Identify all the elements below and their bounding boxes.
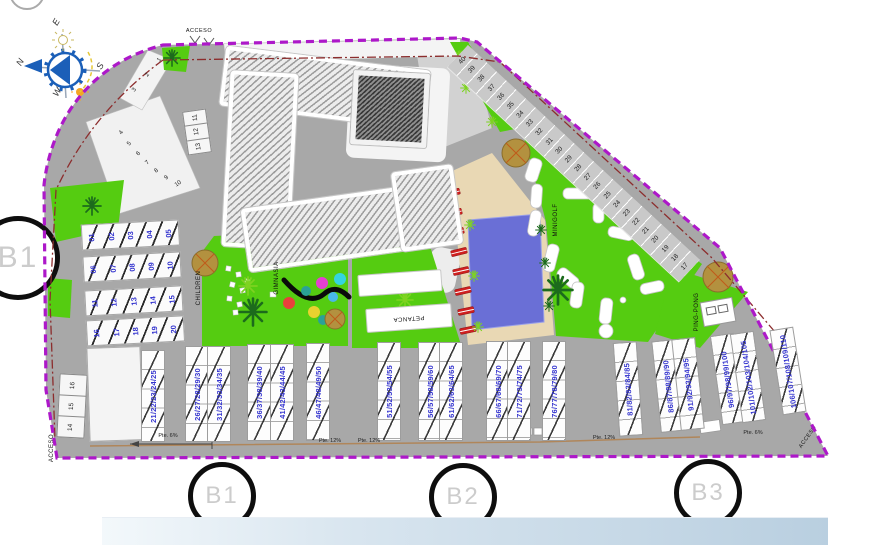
unit-10: 10	[166, 261, 175, 270]
unit-row-label: 36/37/38/39/40	[255, 366, 264, 419]
unit-17: 17	[112, 327, 121, 336]
unit-02: 02	[106, 232, 115, 241]
unit-row-label: 51/52/53/54/55	[385, 365, 394, 418]
unit-19: 19	[150, 325, 159, 334]
parking-box-14-16: 161514	[56, 373, 87, 438]
parking-space-number: 14	[67, 423, 74, 431]
parking-space-number: 15	[68, 402, 75, 410]
apartment-building-east-block	[391, 164, 464, 252]
unit-row-block-5: 41/42/43/44/45	[270, 344, 294, 441]
unit-row-label: 46/47/48/49/50	[314, 366, 323, 419]
unit-03: 03	[126, 231, 135, 240]
slope-label: Pte. 12%	[319, 438, 341, 444]
unit-row-block-6: 46/47/48/49/50	[306, 343, 330, 441]
acceso-top-label: ACCESO	[186, 28, 212, 34]
unit-row-left-4: 1617181920	[86, 315, 185, 346]
unit-row-label: 66/67/68/69/70	[494, 365, 503, 418]
unit-01: 01	[87, 233, 96, 242]
unit-row-block-11: 71/72/73/74/75	[507, 341, 531, 441]
unit-row-label: 31/32/33/34/35	[215, 368, 224, 421]
unit-row-left-1: 0102030405	[81, 219, 180, 250]
unit-row-label: 26/27/28/29/30	[193, 368, 202, 421]
unit-15: 15	[167, 295, 176, 304]
unit-20: 20	[169, 324, 178, 333]
unit-row-block-3: 31/32/33/34/35	[207, 346, 231, 442]
bottom-scale-bar	[102, 517, 828, 545]
unit-row-label: 56/57/58/59/60	[426, 365, 435, 418]
unit-13: 13	[129, 297, 138, 306]
unit-18: 18	[131, 326, 140, 335]
site-plan-canvas: 4039383736353433323130292827262524232221…	[0, 0, 870, 550]
storage-building	[86, 346, 143, 442]
unit-row-label: 106/107/108/109/110	[778, 334, 799, 409]
unit-row-label: 91/92/93/94/95	[681, 357, 695, 411]
slope-label: Pte. 6%	[743, 430, 762, 436]
unit-row-label: 101/102/103/104/105	[738, 339, 757, 414]
unit-row-label: 61/62/63/64/65	[447, 365, 456, 418]
unit-12: 12	[110, 298, 119, 307]
minigolf-area-label: MINIGOLF	[553, 203, 559, 236]
parking-space-number: 13	[195, 142, 203, 150]
unit-row-label: 71/72/73/74/75	[515, 365, 524, 418]
unit-row-label: 81/82/83/84/85	[622, 362, 635, 415]
unit-row-left-3: 1112131415	[84, 285, 183, 316]
unit-14: 14	[148, 296, 157, 305]
unit-16: 16	[92, 328, 101, 337]
unit-row-label: 21/22/23/24/25	[149, 370, 158, 423]
unit-07: 07	[108, 264, 117, 273]
acceso-left-label: ACCESO	[49, 434, 55, 462]
slope-label: Pte. 6%	[158, 433, 177, 439]
slope-label: Pte. 12%	[593, 435, 615, 441]
unit-row-block-12: 76/77/78/79/80	[542, 341, 566, 441]
unit-row-label: 41/42/43/44/45	[278, 366, 287, 419]
unit-row-block-7: 51/52/53/54/55	[377, 342, 401, 441]
parking-space-number: 12	[193, 128, 201, 136]
pingpong-table	[700, 297, 736, 326]
children-area-label: CHILDREN	[196, 271, 202, 306]
unit-11: 11	[91, 299, 100, 307]
unit-row-label: 76/77/78/79/80	[550, 365, 559, 418]
parking-space-number: 16	[69, 381, 76, 389]
unit-block-left: 0102030405060708091011121314151617181920	[81, 220, 183, 351]
entrance-arrows	[190, 36, 214, 45]
unit-05: 05	[164, 229, 173, 238]
slope-label: Pte. 12%	[358, 438, 380, 444]
unit-09: 09	[146, 262, 155, 271]
parking-space-15: 15	[58, 395, 85, 417]
unit-08: 08	[127, 263, 136, 272]
unit-row-label: 86/87/88/89/90	[661, 359, 675, 413]
parking-space-13: 13	[187, 138, 211, 154]
building-tower-block	[350, 70, 430, 148]
petanca-label: PETANCA	[393, 314, 425, 322]
unit-row-block-9: 61/62/63/64/65	[439, 342, 463, 441]
parking-space-14: 14	[57, 416, 84, 437]
unit-row-block-2: 26/27/28/29/30	[185, 346, 209, 442]
parking-space-16: 16	[60, 374, 87, 396]
unit-04: 04	[145, 230, 154, 239]
unit-06: 06	[89, 265, 98, 274]
unit-row-block-4: 36/37/38/39/40	[247, 344, 271, 441]
gimnasia-area-label: GIMNASIA	[274, 261, 280, 294]
unit-row-left-2: 0607080910	[82, 251, 181, 282]
pingpong-area-label: PING-PONG	[694, 293, 700, 332]
parking-space-number: 11	[191, 114, 199, 122]
unit-row-block-1: 21/22/23/24/25	[141, 350, 165, 442]
